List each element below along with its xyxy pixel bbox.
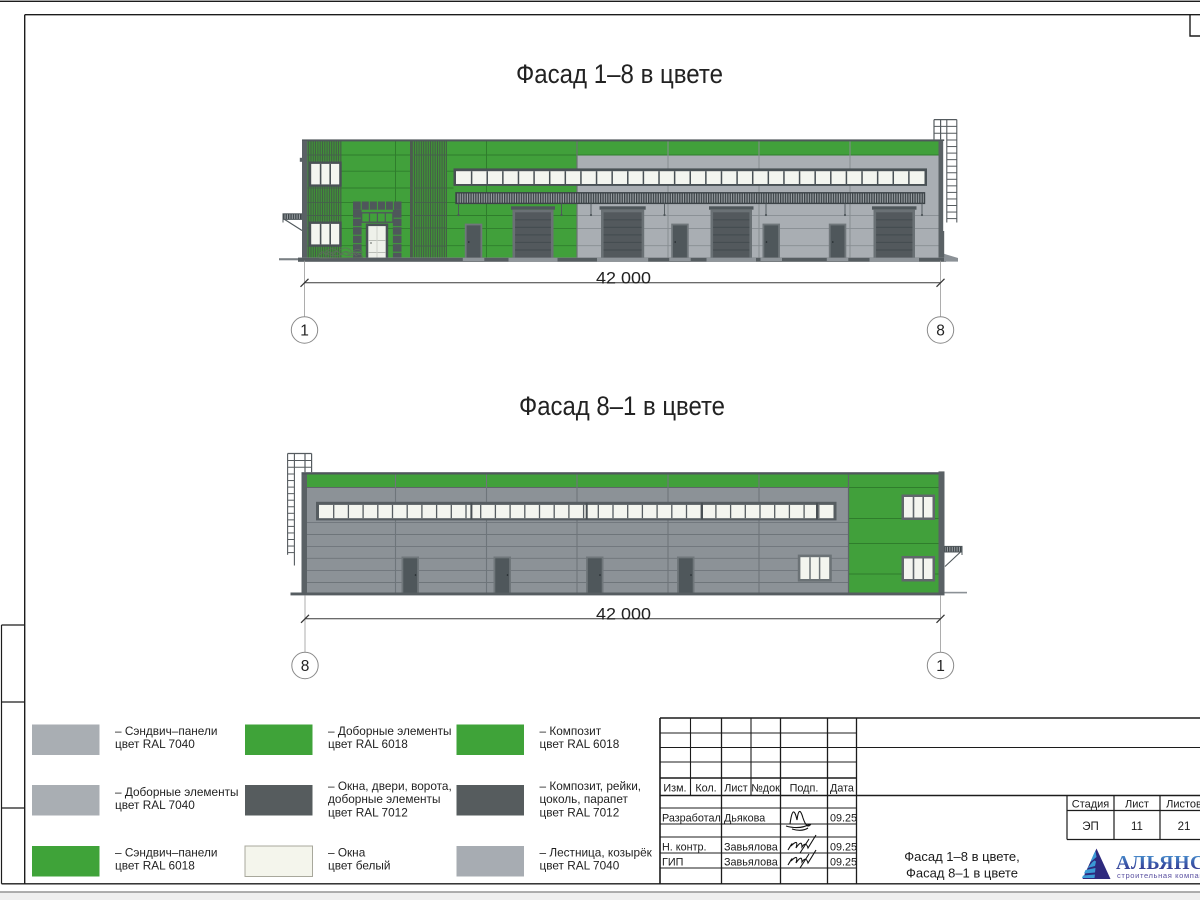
svg-text:– Окна: – Окна xyxy=(328,846,366,860)
svg-text:09.25: 09.25 xyxy=(830,813,857,825)
svg-text:Фасад 1–8 в цвете,: Фасад 1–8 в цвете, xyxy=(904,849,1020,864)
svg-text:Кол.: Кол. xyxy=(695,783,716,795)
svg-text:цоколь, парапет: цоколь, парапет xyxy=(540,792,629,806)
svg-text:– Лестница, козырёк: – Лестница, козырёк xyxy=(540,846,653,860)
svg-text:Изм.: Изм. xyxy=(663,783,686,795)
svg-text:– Доборные элементы: – Доборные элементы xyxy=(115,785,239,799)
svg-text:42 000: 42 000 xyxy=(596,269,651,288)
svg-text:21: 21 xyxy=(1178,821,1191,833)
svg-text:ЭП: ЭП xyxy=(1082,821,1099,833)
svg-text:– Окна, двери, ворота,: – Окна, двери, ворота, xyxy=(328,779,452,793)
svg-text:Дьякова: Дьякова xyxy=(724,813,765,825)
svg-text:09.25: 09.25 xyxy=(830,857,857,869)
svg-text:– Композит, рейки,: – Композит, рейки, xyxy=(540,779,642,793)
svg-text:Лист: Лист xyxy=(1125,799,1149,811)
svg-text:8: 8 xyxy=(301,658,310,675)
svg-text:Листов: Листов xyxy=(1166,799,1200,811)
svg-text:цвет RAL 7040: цвет RAL 7040 xyxy=(115,798,195,812)
svg-text:Фасад 8–1 в цвете: Фасад 8–1 в цвете xyxy=(906,866,1018,881)
svg-text:– Композит: – Композит xyxy=(540,724,602,738)
svg-text:цвет RAL 7040: цвет RAL 7040 xyxy=(115,737,195,751)
svg-text:1: 1 xyxy=(300,323,309,340)
svg-text:09.25: 09.25 xyxy=(830,842,857,854)
svg-text:42 000: 42 000 xyxy=(596,605,651,624)
svg-text:1: 1 xyxy=(936,658,945,675)
svg-text:цвет RAL 6018: цвет RAL 6018 xyxy=(540,737,620,751)
svg-text:Разработал: Разработал xyxy=(662,813,721,825)
svg-text:Дата: Дата xyxy=(830,783,854,795)
svg-text:Стадия: Стадия xyxy=(1072,799,1110,811)
svg-text:Завьялова: Завьялова xyxy=(724,857,778,869)
svg-text:Лист: Лист xyxy=(724,783,748,795)
svg-text:Фасад 8–1 в цвете: Фасад 8–1 в цвете xyxy=(519,391,725,421)
svg-text:№док: №док xyxy=(751,783,780,795)
svg-text:Фасад 1–8 в цвете: Фасад 1–8 в цвете xyxy=(516,59,723,89)
svg-text:Завьялова: Завьялова xyxy=(724,842,778,854)
svg-text:Н. контр.: Н. контр. xyxy=(662,842,707,854)
svg-text:8: 8 xyxy=(936,323,945,340)
svg-text:– Сэндвич–панели: – Сэндвич–панели xyxy=(115,724,217,738)
svg-text:цвет RAL 6018: цвет RAL 6018 xyxy=(328,737,408,751)
svg-text:Подп.: Подп. xyxy=(790,783,819,795)
svg-text:строительная компания: строительная компания xyxy=(1117,871,1200,880)
svg-text:– Сэндвич–панели: – Сэндвич–панели xyxy=(115,846,217,860)
svg-text:11: 11 xyxy=(1131,821,1143,833)
svg-text:– Доборные элементы: – Доборные элементы xyxy=(328,724,452,738)
svg-text:цвет RAL 6018: цвет RAL 6018 xyxy=(115,859,195,873)
svg-text:цвет белый: цвет белый xyxy=(328,859,391,873)
svg-text:ГИП: ГИП xyxy=(662,857,683,869)
svg-text:цвет RAL 7040: цвет RAL 7040 xyxy=(540,859,620,873)
svg-text:доборные элементы: доборные элементы xyxy=(328,792,440,806)
svg-text:цвет RAL 7012: цвет RAL 7012 xyxy=(328,805,408,819)
svg-text:цвет RAL 7012: цвет RAL 7012 xyxy=(540,805,620,819)
